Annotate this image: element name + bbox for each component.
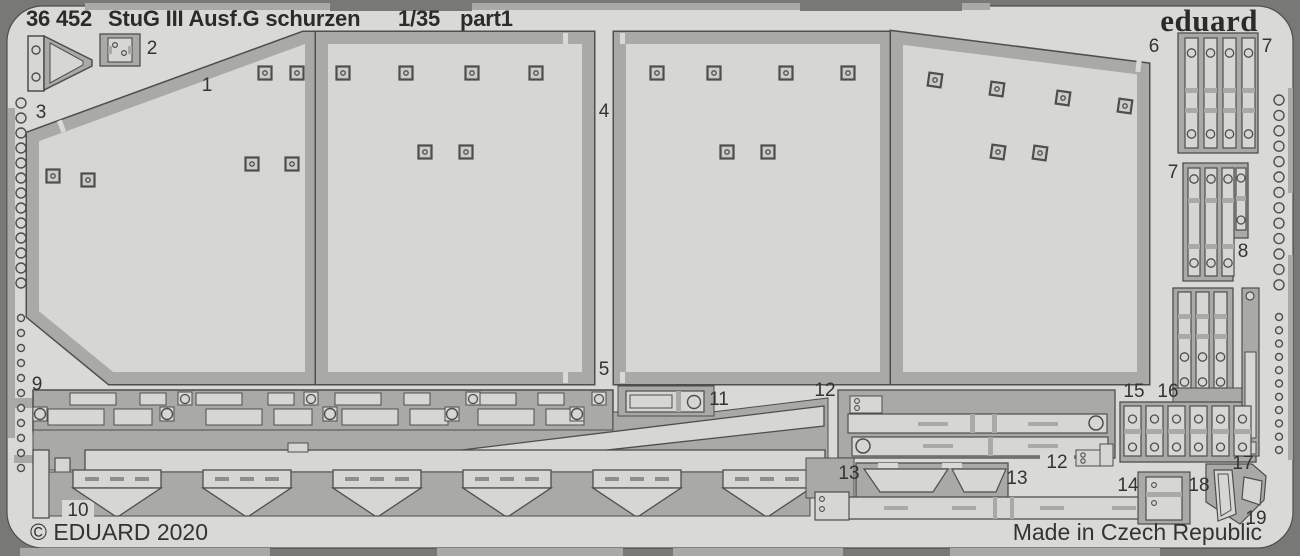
part-14-bracket [1138,472,1190,524]
sheet-title: StuG III Ausf.G schurzen [108,6,360,32]
part-12-cluster [838,390,1115,466]
part-number: part1 [460,6,513,32]
eduard-logo: eduard [1160,3,1258,39]
schurzen-plates [33,38,1143,378]
plate-part-4 [322,38,588,378]
copyright-text: © EDUARD 2020 [30,519,208,546]
part-2-fitting [100,34,140,66]
fret-drawing [0,0,1300,556]
plate-part-5 [620,38,886,378]
plate-part-6 [897,38,1143,378]
pe-fret-sheet: 36 452 StuG III Ausf.G schurzen 1/35 par… [0,0,1300,556]
made-in-text: Made in Czech Republic [1013,519,1262,546]
part-9-hinge-rail [33,390,613,432]
part-11-strip [618,386,714,416]
scale-label: 1/35 [398,6,440,32]
catalog-number: 36 452 [26,6,92,32]
